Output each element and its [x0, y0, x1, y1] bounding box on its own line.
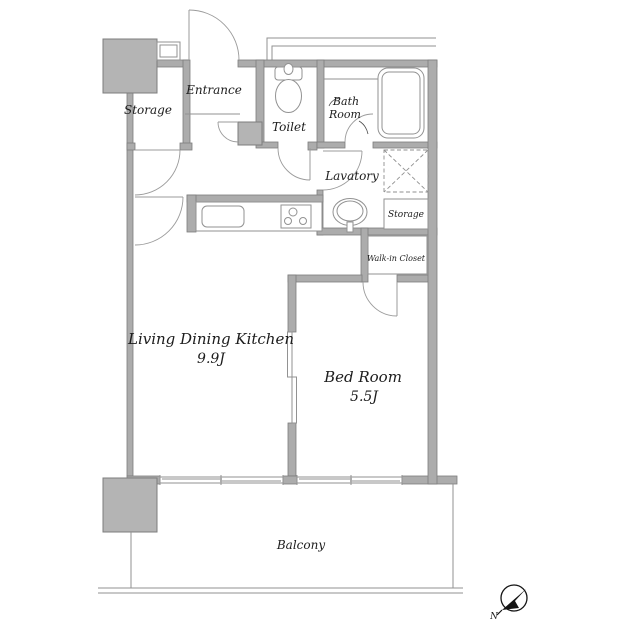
toilet-flush: [284, 64, 293, 75]
wall-segment: [428, 60, 437, 484]
room-label-storage-top: Storage: [124, 103, 172, 117]
room-label-ldk: Living Dining Kitchen: [127, 330, 294, 348]
wall-segment: [187, 195, 196, 232]
room-size-ldk: 9.9J: [197, 351, 226, 367]
wall-segment: [127, 93, 133, 476]
toilet-bowl: [276, 80, 302, 113]
floorplan-canvas: Storage Entrance Toilet Bath Room Lavato…: [0, 0, 640, 640]
toilet-fixture: [275, 64, 302, 113]
wall-segment: [180, 143, 192, 150]
wall-segment: [288, 423, 296, 476]
wall-segment: [288, 275, 362, 282]
room-label-lavatory: Lavatory: [324, 169, 379, 183]
wall-segment: [183, 60, 190, 147]
room-label-toilet: Toilet: [272, 120, 306, 134]
wall-segment: [317, 142, 345, 148]
wall-segment: [373, 142, 437, 148]
room-label-bath-line2: Room: [328, 108, 361, 121]
pillar-hall: [238, 122, 262, 145]
stove: [281, 205, 311, 228]
wall-segment: [288, 275, 296, 332]
wall-segment: [317, 60, 324, 148]
compass-north-label: N: [489, 612, 499, 622]
pillar-top-left: [103, 39, 157, 93]
kitchen-counter: [196, 202, 322, 231]
room-label-bedroom: Bed Room: [323, 368, 402, 386]
wall-segment: [308, 142, 317, 150]
room-label-balcony: Balcony: [276, 538, 325, 552]
room-label-bath-line1: Bath: [332, 95, 359, 108]
room-size-bedroom: 5.5J: [350, 389, 379, 405]
floorplan-drawing: Storage Entrance Toilet Bath Room Lavato…: [0, 0, 640, 640]
wall-segment: [187, 195, 323, 202]
wall-segment: [127, 143, 135, 150]
washbasin-stand: [347, 222, 353, 232]
room-label-walk-in-closet: Walk-in Closet: [367, 254, 426, 263]
sliding-door-panel: [292, 377, 297, 423]
kitchen-sink: [202, 206, 244, 227]
room-label-storage-hall: Storage: [388, 210, 424, 220]
bathtub: [378, 68, 424, 138]
wall-segment: [283, 476, 297, 484]
room-label-entrance: Entrance: [185, 83, 242, 97]
wall-segment: [397, 275, 430, 282]
wall-segment: [238, 60, 437, 67]
pillar-bottom-left: [103, 478, 157, 532]
